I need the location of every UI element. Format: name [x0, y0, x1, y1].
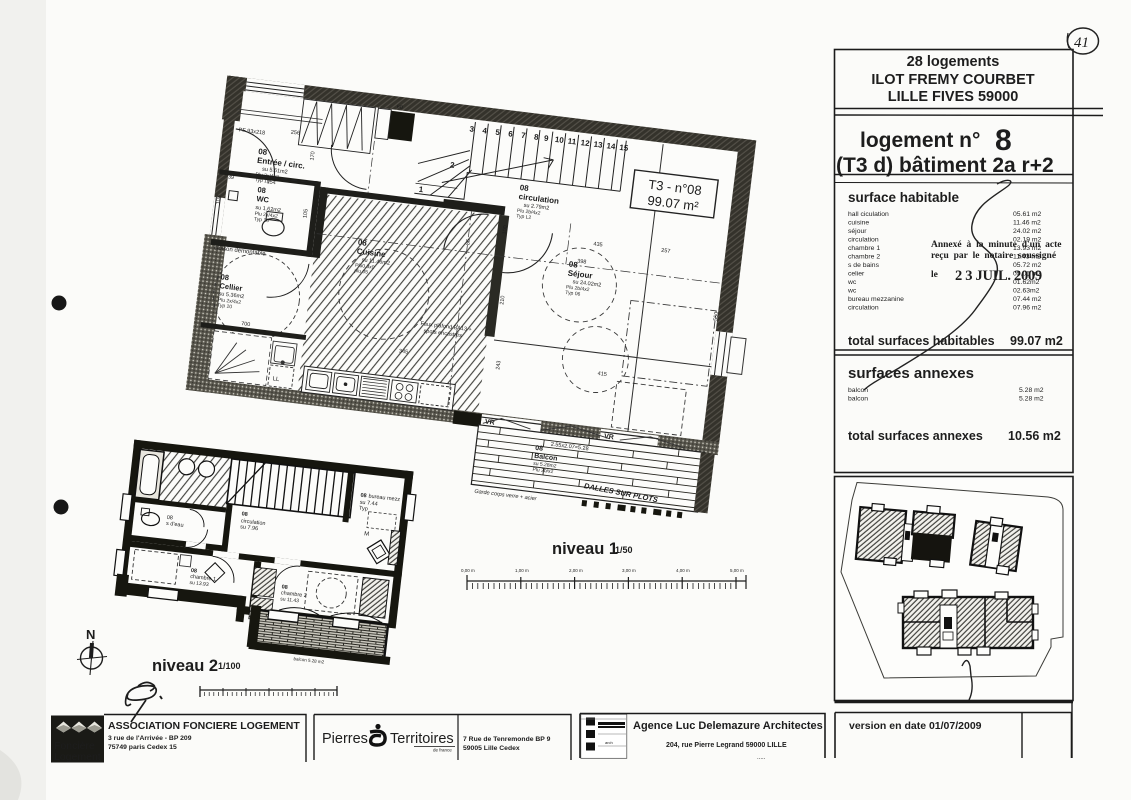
svg-text:204, rue Pierre Legrand 59000: 204, rue Pierre Legrand 59000 LILLE: [666, 742, 787, 749]
svg-text:28 logements: 28 logements: [907, 54, 1000, 70]
svg-text:Territoires: Territoires: [390, 731, 454, 747]
svg-text:1/100: 1/100: [218, 661, 241, 671]
svg-text:WC: WC: [256, 194, 270, 205]
svg-text:1/50: 1/50: [615, 545, 633, 555]
svg-text:ASSOCIATION FONCIERE LOGEMENT: ASSOCIATION FONCIERE LOGEMENT: [108, 720, 300, 732]
svg-text:3,00 m: 3,00 m: [622, 568, 636, 573]
svg-text:10.56 m2: 10.56 m2: [1008, 429, 1061, 443]
svg-text:niveau 2: niveau 2: [152, 657, 218, 675]
svg-text:total surfaces habitables: total surfaces habitables: [848, 334, 995, 348]
svg-text:41: 41: [1074, 35, 1089, 51]
svg-text:08: 08: [241, 511, 248, 518]
svg-text:(T3 d) bâtiment 2a r+2: (T3 d) bâtiment 2a r+2: [836, 154, 1054, 177]
svg-text:02.63m2: 02.63m2: [1013, 288, 1040, 295]
svg-text:LILLE FIVES 59000: LILLE FIVES 59000: [888, 89, 1019, 105]
svg-text:05.61 m2: 05.61 m2: [1013, 211, 1042, 218]
svg-text:version en date 01/07/2009: version en date 01/07/2009: [849, 720, 982, 732]
svg-text:11: 11: [567, 137, 577, 147]
svg-text:10: 10: [554, 135, 564, 145]
svg-text:total surfaces annexes: total surfaces annexes: [848, 429, 983, 443]
svg-text:398: 398: [577, 259, 587, 266]
svg-text:ILOT FREMY COURBET: ILOT FREMY COURBET: [871, 72, 1034, 88]
svg-text:circulation: circulation: [848, 305, 879, 312]
svg-text:Agence Luc Delemazure Architec: Agence Luc Delemazure Architectes: [633, 720, 823, 732]
svg-text:de france: de france: [433, 748, 452, 753]
svg-text:surface habitable: surface habitable: [848, 190, 960, 205]
svg-text:séjour: séjour: [848, 228, 867, 235]
svg-text:cuisine: cuisine: [848, 220, 869, 227]
svg-text:08: 08: [360, 493, 367, 500]
svg-text:niveau 1: niveau 1: [552, 540, 618, 558]
svg-text:4,00 m: 4,00 m: [676, 568, 690, 573]
svg-text:balcon: balcon: [848, 396, 868, 403]
svg-text:435: 435: [593, 241, 603, 248]
svg-text:Typ: Typ: [359, 506, 368, 513]
svg-text:3 rue de l'Arrivée - BP 209: 3 rue de l'Arrivée - BP 209: [108, 735, 192, 742]
svg-text:le: le: [931, 270, 938, 280]
svg-text:99.07 m2: 99.07 m2: [1010, 334, 1063, 348]
svg-text:11.46 m2: 11.46 m2: [1013, 220, 1041, 227]
svg-text:60: 60: [396, 104, 403, 111]
svg-text:14: 14: [606, 141, 616, 151]
svg-text:700: 700: [241, 321, 251, 328]
svg-text:103: 103: [216, 195, 223, 205]
svg-text:345: 345: [399, 349, 409, 356]
svg-text:170: 170: [310, 151, 317, 161]
svg-text:.....: .....: [757, 755, 766, 761]
svg-text:N: N: [86, 627, 95, 642]
svg-text:2 3 JUIL. 2009: 2 3 JUIL. 2009: [955, 268, 1042, 284]
svg-text:chambre 2: chambre 2: [848, 254, 880, 261]
svg-text:reçu par le notaire soussigné: reçu par le notaire soussigné: [931, 251, 1056, 261]
svg-text:13: 13: [593, 140, 603, 150]
svg-text:256: 256: [290, 130, 300, 137]
svg-text:415: 415: [597, 371, 607, 378]
svg-text:07.44 m2: 07.44 m2: [1013, 296, 1042, 303]
svg-text:logement n°: logement n°: [860, 129, 980, 152]
svg-text:chambre 1: chambre 1: [848, 245, 880, 252]
svg-text:1,00 m: 1,00 m: [515, 568, 529, 573]
svg-text:15: 15: [619, 143, 629, 153]
svg-text:257: 257: [661, 248, 671, 255]
svg-text:0,00 m: 0,00 m: [461, 568, 475, 573]
svg-text:5.28 m2: 5.28 m2: [1019, 387, 1044, 394]
svg-text:210: 210: [499, 295, 506, 305]
svg-text:bureau mezzanine: bureau mezzanine: [848, 296, 904, 303]
svg-text:12: 12: [580, 138, 590, 148]
svg-text:08: 08: [535, 445, 544, 453]
svg-text:s de bains: s de bains: [848, 262, 880, 269]
svg-text:wc: wc: [847, 288, 857, 295]
svg-text:hall ciculation: hall ciculation: [848, 211, 889, 218]
svg-text:surfaces annexes: surfaces annexes: [848, 365, 974, 382]
svg-text:100: 100: [502, 225, 509, 235]
svg-text:Pierres: Pierres: [322, 731, 368, 747]
svg-text:circulation: circulation: [848, 237, 879, 244]
svg-text:5.28 m2: 5.28 m2: [1019, 396, 1044, 403]
svg-text:Logement: Logement: [54, 751, 101, 763]
svg-text:550: 550: [713, 311, 720, 321]
svg-text:105: 105: [303, 209, 310, 219]
svg-text:243: 243: [495, 360, 502, 370]
svg-text:wc: wc: [847, 279, 857, 286]
svg-text:Annexé à la minute d'un acte: Annexé à la minute d'un acte: [931, 240, 1061, 250]
svg-text:5,00 m: 5,00 m: [730, 568, 744, 573]
svg-text:07.96 m2: 07.96 m2: [1013, 305, 1042, 312]
svg-text:8: 8: [995, 124, 1012, 157]
svg-text:7 Rue de Tenremonde BP 9: 7 Rue de Tenremonde BP 9: [463, 736, 551, 743]
svg-text:39: 39: [228, 174, 235, 181]
svg-text:2,00 m: 2,00 m: [569, 568, 583, 573]
svg-text:celier: celier: [848, 271, 865, 278]
svg-text:86: 86: [465, 239, 472, 246]
svg-text:24.02 m2: 24.02 m2: [1013, 228, 1042, 235]
svg-text:arch: arch: [605, 740, 613, 745]
svg-text:M: M: [364, 531, 370, 538]
svg-text:59005 Lille Cedex: 59005 Lille Cedex: [463, 745, 520, 752]
svg-text:75749 paris Cedex 15: 75749 paris Cedex 15: [108, 744, 177, 751]
